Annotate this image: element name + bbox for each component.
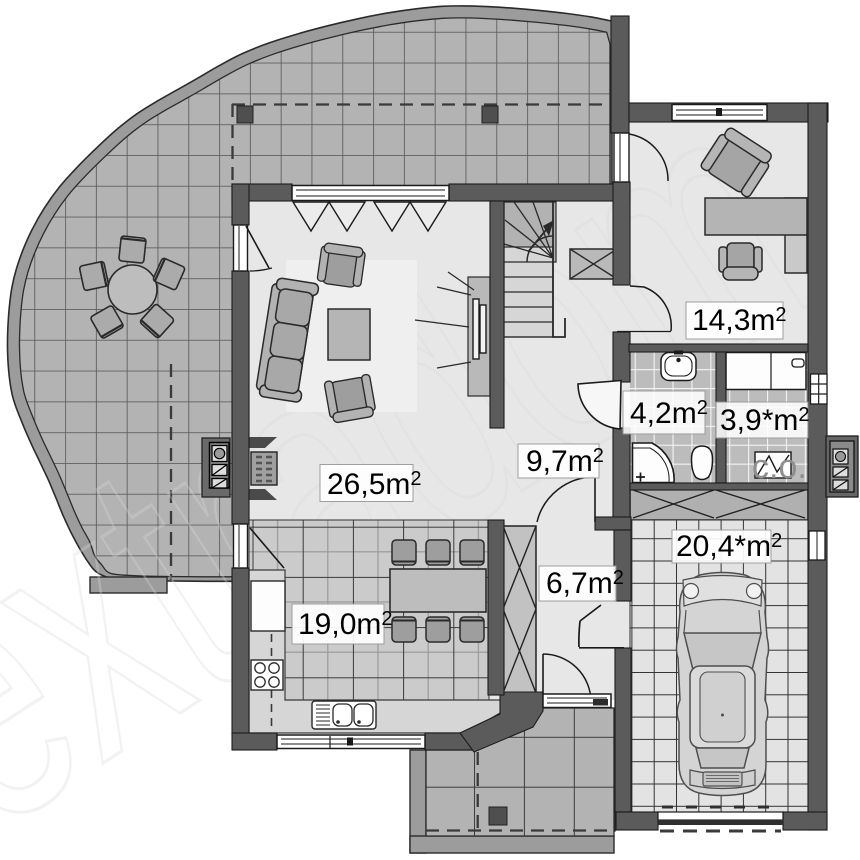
svg-text:20,4*m2: 20,4*m2 xyxy=(676,530,782,563)
svg-text:3,9*m2: 3,9*m2 xyxy=(720,404,810,437)
svg-text:6,7m2: 6,7m2 xyxy=(546,567,624,600)
svg-text:14,3m2: 14,3m2 xyxy=(692,304,787,337)
svg-text:c.o.: c.o. xyxy=(752,448,807,486)
svg-text:19,0m2: 19,0m2 xyxy=(298,608,393,641)
svg-text:4,2m2: 4,2m2 xyxy=(630,397,708,430)
svg-text:26,5m2: 26,5m2 xyxy=(327,468,422,501)
svg-text:9,7m2: 9,7m2 xyxy=(526,445,604,478)
